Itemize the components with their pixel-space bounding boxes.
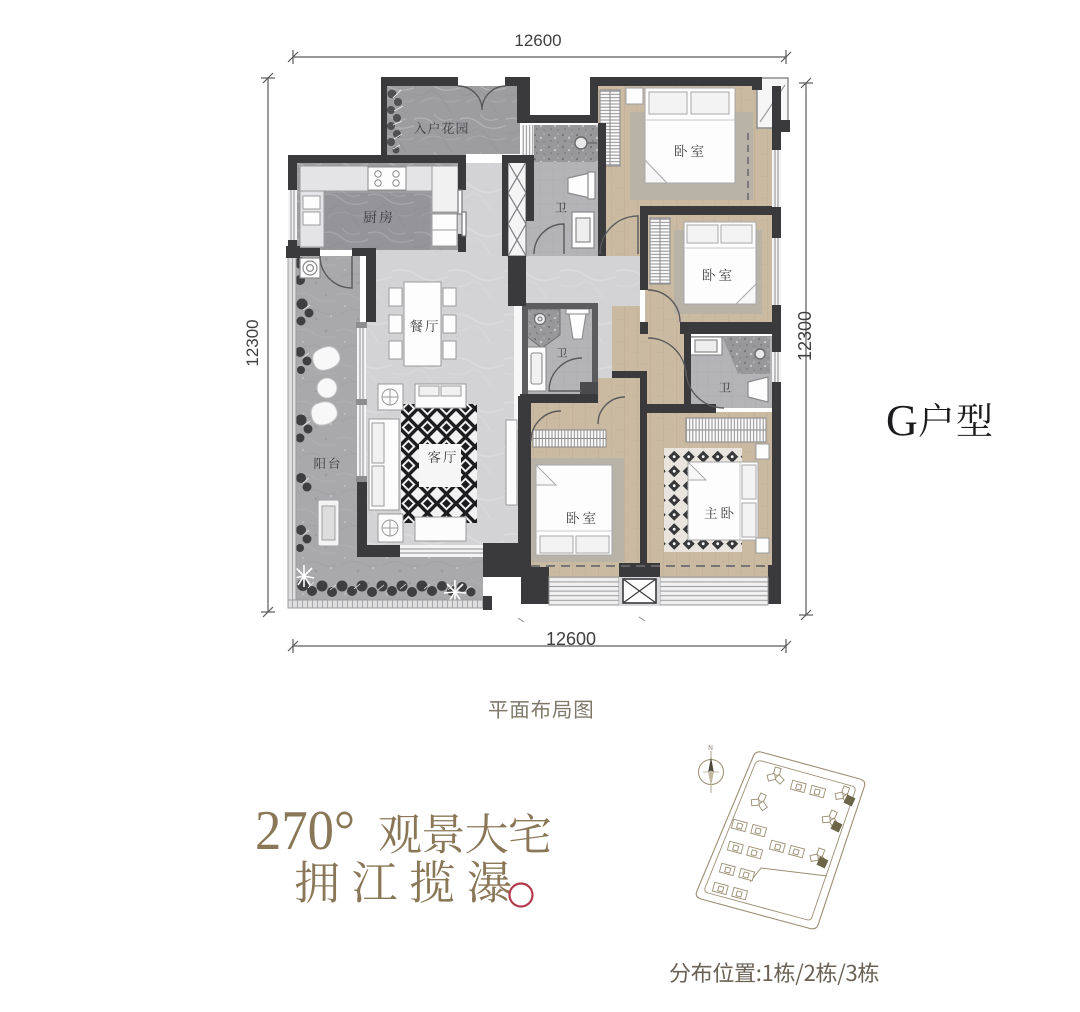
svg-text:G: G [886,396,918,445]
svg-text:12300: 12300 [243,319,262,366]
svg-text:12600: 12600 [514,31,561,50]
svg-text:12600: 12600 [546,629,596,649]
svg-text:270°: 270° [255,800,355,862]
svg-text:12300: 12300 [795,311,815,361]
